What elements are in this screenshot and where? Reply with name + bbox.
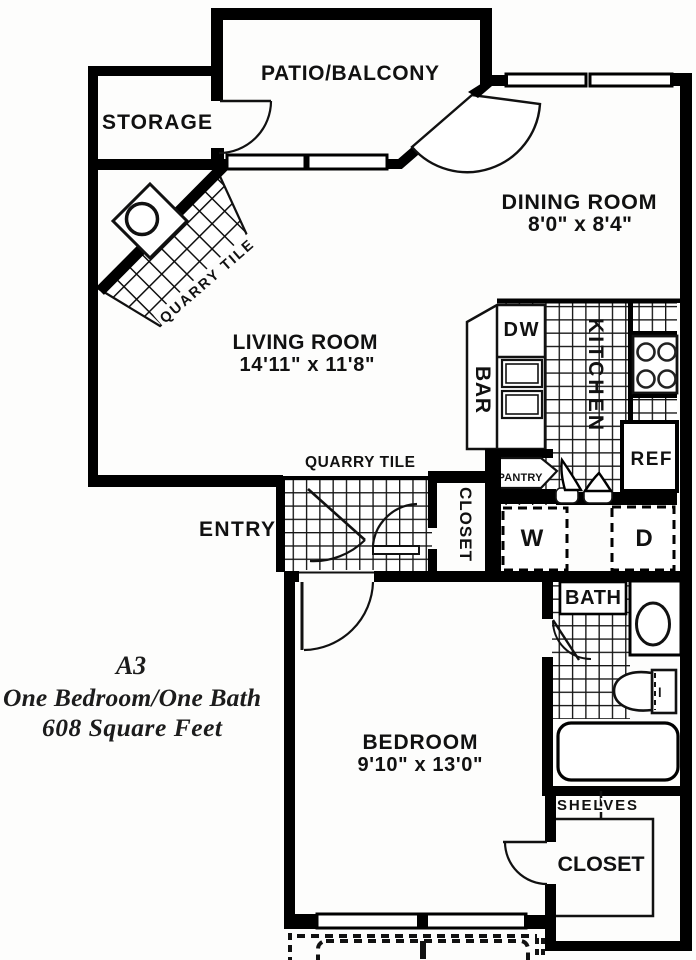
svg-text:DINING ROOM: DINING ROOM [502,190,657,214]
svg-text:A3: A3 [114,651,146,680]
svg-text:D: D [635,525,652,552]
svg-text:DW: DW [504,319,539,341]
svg-text:608 Square Feet: 608 Square Feet [42,713,223,742]
svg-text:CLOSET: CLOSET [558,852,645,876]
svg-text:STORAGE: STORAGE [102,111,212,134]
svg-text:BATH: BATH [565,587,621,609]
svg-text:PANTRY: PANTRY [498,472,544,484]
svg-text:One Bedroom/One Bath: One Bedroom/One Bath [3,683,261,712]
svg-text:W: W [521,525,544,552]
svg-text:14'11" x 11'8": 14'11" x 11'8" [240,354,375,376]
svg-text:l: l [658,685,662,700]
svg-text:9'10" x 13'0": 9'10" x 13'0" [358,754,483,776]
svg-text:8'0" x 8'4": 8'0" x 8'4" [528,213,632,236]
svg-text:SHELVES: SHELVES [557,797,637,814]
svg-text:CLOSET: CLOSET [456,487,475,562]
svg-text:QUARRY TILE: QUARRY TILE [305,454,415,471]
svg-text:REF: REF [631,449,672,470]
svg-text:ENTRY: ENTRY [199,518,275,541]
svg-text:PATIO/BALCONY: PATIO/BALCONY [261,62,439,85]
svg-text:BEDROOM: BEDROOM [363,731,478,754]
svg-text:LIVING ROOM: LIVING ROOM [233,331,378,354]
svg-text:BAR: BAR [471,366,494,413]
